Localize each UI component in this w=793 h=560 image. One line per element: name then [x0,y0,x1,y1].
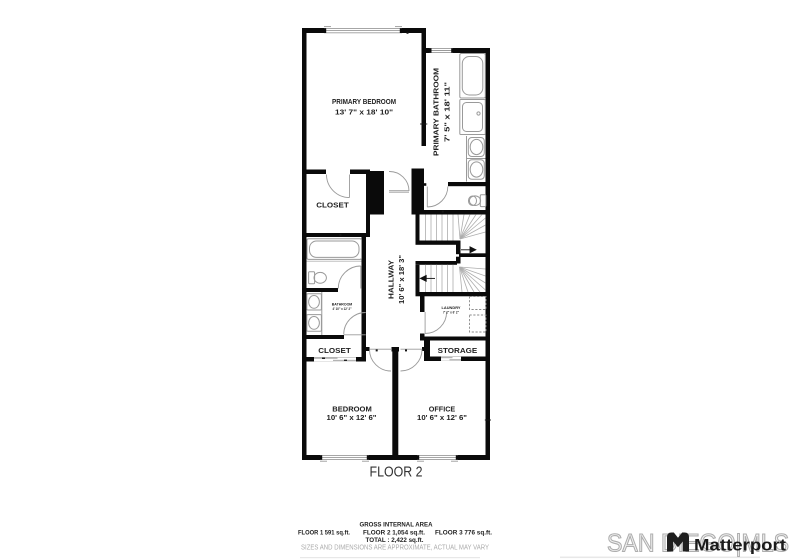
svg-text:FLOOR 1 591 sq.ft.: FLOOR 1 591 sq.ft. [298,530,350,537]
svg-text:7' 5" x 18' 11": 7' 5" x 18' 11" [445,82,452,142]
svg-text:BATHROOM: BATHROOM [332,302,353,307]
svg-text:4' 10" x 12' 2": 4' 10" x 12' 2" [333,307,352,311]
svg-text:TOTAL : 2,422 sq.ft.: TOTAL : 2,422 sq.ft. [366,537,424,544]
svg-text:FLOOR 2: FLOOR 2 [370,465,423,481]
svg-text:PRIMARY BEDROOM: PRIMARY BEDROOM [332,97,396,106]
svg-text:Matterport: Matterport [694,537,787,555]
svg-text:CLOSET: CLOSET [316,201,349,210]
svg-text:SIZES AND DIMENSIONS ARE APPRO: SIZES AND DIMENSIONS ARE APPROXIMATE, AC… [301,545,489,552]
svg-text:PRIMARY BATHROOM: PRIMARY BATHROOM [432,68,441,156]
svg-text:BEDROOM: BEDROOM [332,405,372,414]
svg-text:10' 6" x 12' 6": 10' 6" x 12' 6" [327,415,377,422]
svg-text:CLOSET: CLOSET [318,346,351,355]
svg-text:LAUNDRY: LAUNDRY [442,305,461,310]
svg-text:OFFICE: OFFICE [429,405,456,414]
svg-text:FLOOR 2 1,054 sq.ft.: FLOOR 2 1,054 sq.ft. [363,530,425,537]
svg-text:7' 2" x 6' 2": 7' 2" x 6' 2" [443,311,459,315]
svg-text:HALLWAY: HALLWAY [387,260,396,299]
svg-text:10' 6" x 12' 6": 10' 6" x 12' 6" [417,415,467,422]
svg-text:10' 6" x 18' 3": 10' 6" x 18' 3" [399,255,406,304]
svg-text:13' 7" x 18' 10": 13' 7" x 18' 10" [335,110,393,117]
svg-text:GROSS INTERNAL AREA: GROSS INTERNAL AREA [360,522,433,529]
svg-text:FLOOR 3 776 sq.ft.: FLOOR 3 776 sq.ft. [435,530,492,537]
svg-text:STORAGE: STORAGE [438,346,478,355]
